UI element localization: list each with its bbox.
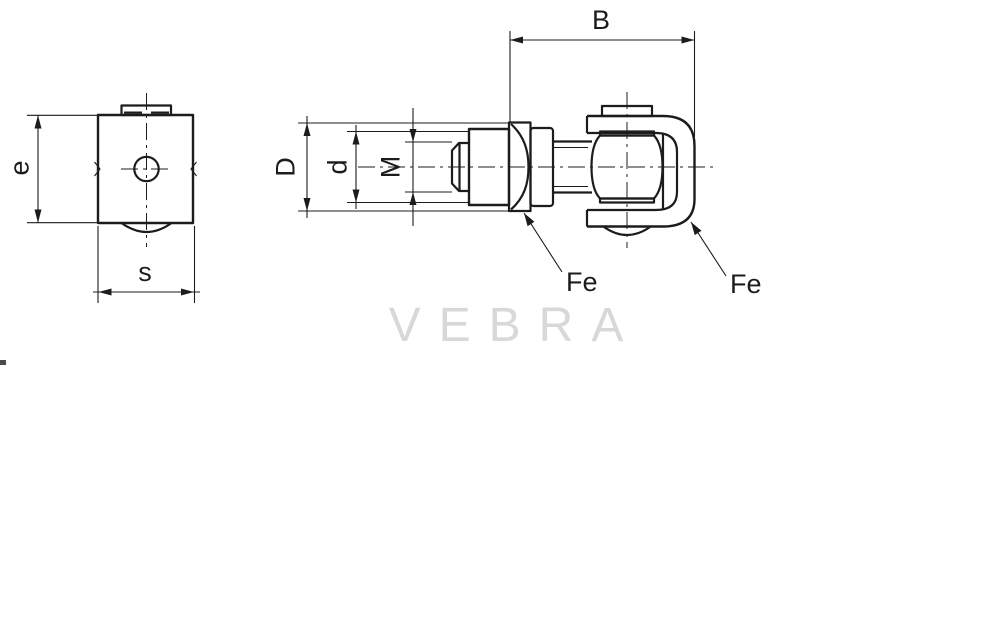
dimension-label-s: s	[138, 257, 152, 287]
dimension-label-D: D	[270, 157, 300, 177]
arrowhead	[410, 192, 417, 205]
arrowhead	[304, 123, 311, 136]
side-view: D d M	[270, 5, 761, 299]
nut-facet-upper	[511, 124, 529, 167]
drawing-page: e s D d	[0, 0, 1000, 630]
technical-drawing: e s D d	[0, 0, 1000, 630]
dimension-label-d: d	[322, 159, 352, 174]
dimension-label-e: e	[4, 160, 34, 175]
arrowhead	[353, 132, 360, 145]
leader-arrowhead	[691, 222, 702, 235]
dimension-label-M: M	[375, 156, 405, 179]
arrowhead	[304, 198, 311, 211]
leader-arrowhead	[524, 213, 534, 226]
arrowhead	[35, 115, 42, 128]
front-view: e s	[4, 93, 200, 303]
vebra-watermark: VEBRA	[389, 299, 642, 352]
arrowhead	[510, 37, 523, 44]
fe-annotation-bracket: Fe	[691, 222, 762, 299]
dimension-label-B: B	[592, 5, 610, 35]
arrowhead	[35, 210, 42, 223]
edge-artifact	[0, 360, 6, 365]
nut-facet-lower	[511, 167, 529, 210]
arrowhead	[682, 37, 695, 44]
material-label-fe: Fe	[730, 269, 762, 299]
arrowhead	[353, 190, 360, 203]
arrowhead	[410, 129, 417, 142]
material-label-fe: Fe	[566, 267, 598, 297]
dimension-e: e	[4, 115, 97, 222]
arrowhead	[99, 289, 112, 296]
arrowhead	[181, 289, 194, 296]
